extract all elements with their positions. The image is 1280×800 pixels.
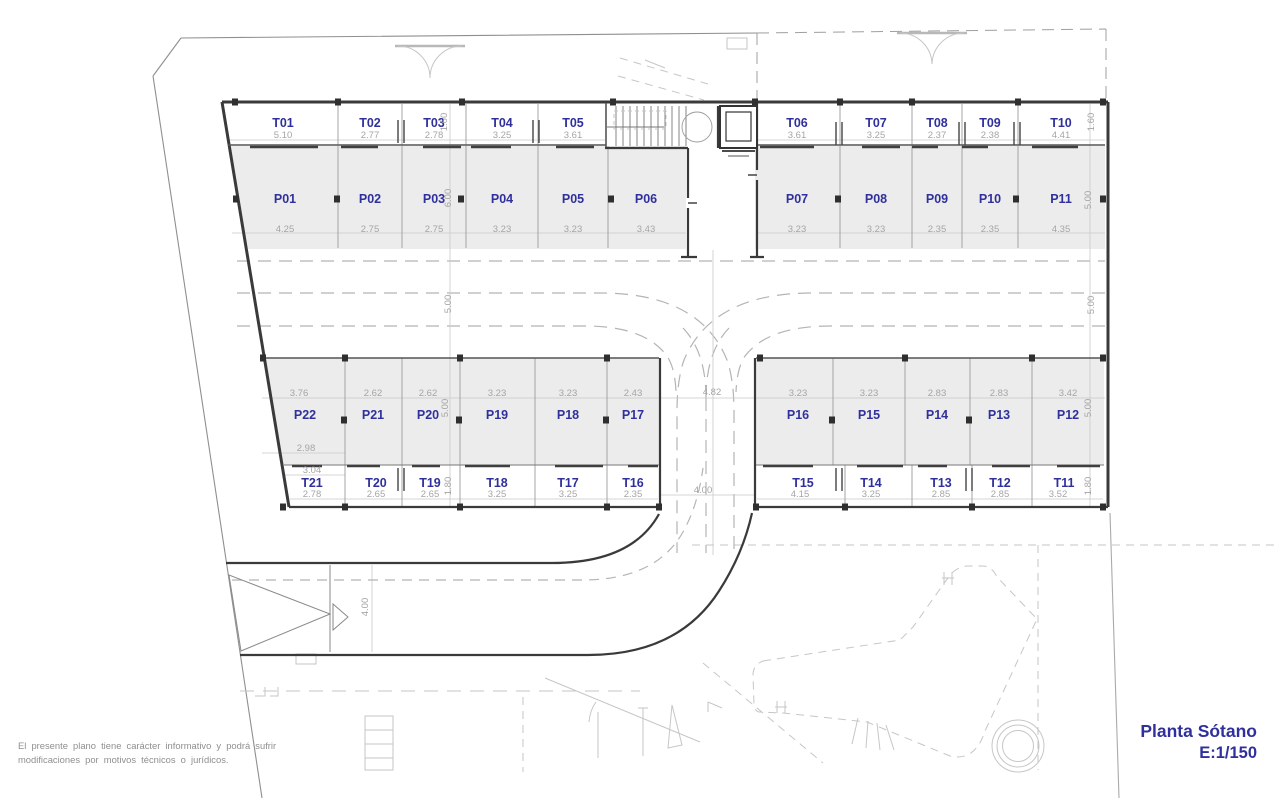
stall-label-p05: P05 <box>562 192 584 206</box>
stall-label-p17: P17 <box>622 408 644 422</box>
stall-dim-t17: 3.25 <box>559 489 578 500</box>
stall-dim-p13: 2.83 <box>990 388 1009 399</box>
stall-dim-p06: 3.43 <box>637 224 656 235</box>
stall-dim-p18: 3.23 <box>559 388 578 399</box>
stall-label-t13: T13 <box>930 476 952 490</box>
stall-dim-t19: 2.65 <box>421 489 440 500</box>
stall-dim-p11: 4.35 <box>1052 224 1071 235</box>
stall-label-t10: T10 <box>1050 116 1072 130</box>
stall-label-t21: T21 <box>301 476 323 490</box>
stall-label-p22: P22 <box>294 408 316 422</box>
stall-label-p09: P09 <box>926 192 948 206</box>
stall-label-t08: T08 <box>926 116 948 130</box>
stall-dim-t07: 3.25 <box>867 130 886 141</box>
ramp-direction-arrow <box>229 565 348 652</box>
stall-label-t18: T18 <box>486 476 508 490</box>
stall-dim-t02: 2.77 <box>361 130 380 141</box>
stall-label-p11: P11 <box>1050 192 1072 206</box>
dim-label-13: 2.98 <box>297 443 316 454</box>
dim-label-4: 1.80 <box>443 477 454 496</box>
stall-dim-p19: 3.23 <box>488 388 507 399</box>
stall-dim-t12: 2.85 <box>991 489 1010 500</box>
stall-dim-t15: 4.15 <box>791 489 810 500</box>
stall-dim-p17: 2.43 <box>624 388 643 399</box>
stall-dim-p01: 4.25 <box>276 224 295 235</box>
floor-plan-drawing: T015.10T022.77T032.78T043.25T053.61T063.… <box>0 0 1280 800</box>
stall-dim-t16: 2.35 <box>624 489 643 500</box>
stall-label-p15: P15 <box>858 408 880 422</box>
stall-label-t09: T09 <box>979 116 1001 130</box>
stall-label-p19: P19 <box>486 408 508 422</box>
stall-dim-t14: 3.25 <box>862 489 881 500</box>
stall-dim-p09: 2.35 <box>928 224 947 235</box>
pool-outline <box>753 566 1044 772</box>
stall-label-p18: P18 <box>557 408 579 422</box>
stall-label-p07: P07 <box>786 192 808 206</box>
stall-dim-p03: 2.75 <box>425 224 444 235</box>
double-door-arcs <box>398 33 964 78</box>
disclaimer-line-1: El presente plano tiene carácter informa… <box>18 739 320 753</box>
stall-dim-t06: 3.61 <box>788 130 807 141</box>
stall-dim-p10: 2.35 <box>981 224 1000 235</box>
dim-label-12: 4.00 <box>694 485 713 496</box>
dim-label-6: 5.00 <box>1083 191 1094 210</box>
stall-label-t07: T07 <box>865 116 887 130</box>
dim-label-9: 1.80 <box>1083 477 1094 496</box>
stall-dim-p21: 2.62 <box>364 388 383 399</box>
stall-dim-p05: 3.23 <box>564 224 583 235</box>
stall-dim-t20: 2.65 <box>367 489 386 500</box>
stall-label-t05: T05 <box>562 116 584 130</box>
stall-dim-t11: 3.52 <box>1049 489 1068 500</box>
dim-label-10: 4.00 <box>360 598 371 617</box>
stall-label-p13: P13 <box>988 408 1010 422</box>
stall-label-t20: T20 <box>365 476 387 490</box>
stall-dim-t05: 3.61 <box>564 130 583 141</box>
stall-label-p16: P16 <box>787 408 809 422</box>
dim-label-0: 1.60 <box>439 113 450 132</box>
stall-dim-p20: 2.62 <box>419 388 438 399</box>
pool-ladder-icon <box>942 572 954 585</box>
dim-label-7: 5.00 <box>1086 296 1097 315</box>
pool-steps <box>852 718 894 750</box>
dim-label-14: 3.04 <box>303 465 322 476</box>
dim-label-11: 4.82 <box>703 387 722 398</box>
stall-label-t04: T04 <box>491 116 513 130</box>
stall-label-t11: T11 <box>1054 476 1075 490</box>
stall-dim-t04: 3.25 <box>493 130 512 141</box>
stall-label-p01: P01 <box>274 192 296 206</box>
dim-label-2: 5.00 <box>443 295 454 314</box>
stall-dim-p16: 3.23 <box>789 388 808 399</box>
dim-label-3: 5.00 <box>440 399 451 418</box>
disclaimer: El presente plano tiene carácter informa… <box>18 739 320 767</box>
stall-dim-t01: 5.10 <box>274 130 293 141</box>
ground-ramp-dashes <box>618 58 708 100</box>
stall-label-t19: T19 <box>419 476 441 490</box>
stall-dim-p14: 2.83 <box>928 388 947 399</box>
pool-ladder-icon <box>775 701 787 713</box>
floor-plan-page: T015.10T022.77T032.78T043.25T053.61T063.… <box>0 0 1280 800</box>
plan-title: Planta Sótano <box>1140 720 1257 743</box>
stall-dim-t18: 3.25 <box>488 489 507 500</box>
stair-comb-symbol <box>365 716 393 770</box>
stall-label-p03: P03 <box>423 192 445 206</box>
stall-label-p08: P08 <box>865 192 887 206</box>
stall-label-t02: T02 <box>359 116 381 130</box>
stall-label-t12: T12 <box>989 476 1011 490</box>
bottom-decor <box>240 654 823 772</box>
lobby-circle <box>682 112 712 142</box>
dim-label-1: 6.00 <box>443 189 454 208</box>
stall-label-p06: P06 <box>635 192 657 206</box>
stall-dim-t21: 2.78 <box>303 489 322 500</box>
stall-label-t14: T14 <box>860 476 882 490</box>
stall-dim-p04: 3.23 <box>493 224 512 235</box>
stall-dim-p07: 3.23 <box>788 224 807 235</box>
stall-dim-t13: 2.85 <box>932 489 951 500</box>
stall-label-t15: T15 <box>792 476 814 490</box>
spa-circles <box>992 720 1044 772</box>
stall-dim-t10: 4.41 <box>1052 130 1071 141</box>
stall-label-t06: T06 <box>786 116 808 130</box>
stall-label-p20: P20 <box>417 408 439 422</box>
stall-dim-t09: 2.38 <box>981 130 1000 141</box>
dim-label-5: 1.60 <box>1086 113 1097 132</box>
elevator-ground-overlay <box>727 38 747 49</box>
elevator <box>720 106 757 156</box>
stall-label-p14: P14 <box>926 408 948 422</box>
dim-label-8: 5.00 <box>1083 399 1094 418</box>
stall-dim-p15: 3.23 <box>860 388 879 399</box>
stall-dim-p08: 3.23 <box>867 224 886 235</box>
stall-label-p10: P10 <box>979 192 1001 206</box>
title-block: Planta Sótano E:1/150 <box>1140 720 1257 764</box>
stall-label-p21: P21 <box>362 408 384 422</box>
stall-dim-p02: 2.75 <box>361 224 380 235</box>
stall-label-p04: P04 <box>491 192 513 206</box>
stall-dim-t08: 2.37 <box>928 130 947 141</box>
stall-label-t16: T16 <box>622 476 644 490</box>
stall-label-p12: P12 <box>1057 408 1079 422</box>
stall-label-t17: T17 <box>557 476 579 490</box>
stair-treads <box>616 106 686 146</box>
disclaimer-line-2: modificaciones por motivos técnicos o ju… <box>18 753 320 767</box>
stall-label-p02: P02 <box>359 192 381 206</box>
plan-scale: E:1/150 <box>1140 743 1257 764</box>
stall-label-t01: T01 <box>272 116 294 130</box>
stall-dim-p12: 3.42 <box>1059 388 1078 399</box>
stall-dim-p22: 3.76 <box>290 388 309 399</box>
